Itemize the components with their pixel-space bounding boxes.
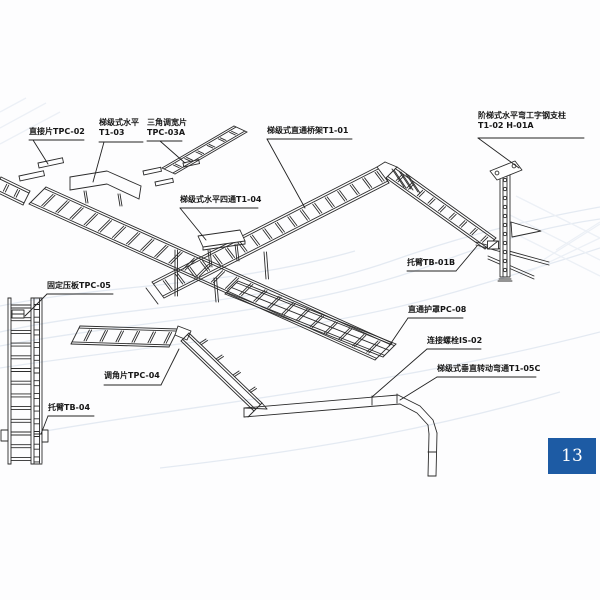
page-number-badge: 13 (548, 438, 596, 474)
incline-tray-tpc04 (181, 333, 267, 417)
bend-fitting-t103 (70, 171, 141, 206)
label-tb01b: 托臂TB-01B (407, 258, 455, 268)
vertical-wall-ladder (1, 298, 48, 464)
label-tpc05: 固定压板TPC-05 (47, 281, 111, 291)
catalog-page: 直接片TPC-02 梯级式水平T1-03 三角调宽片TPC-03A 梯级式直通桥… (0, 0, 600, 600)
label-tpc03a: 三角调宽片TPC-03A (147, 118, 187, 138)
label-tpc02: 直接片TPC-02 (29, 127, 85, 137)
label-t101: 梯级式直通桥架T1-01 (267, 126, 348, 136)
ladder-run-diagonal (29, 187, 392, 360)
label-tb04: 托臂TB-04 (48, 403, 90, 413)
width-adjust-pieces-tpc03a (143, 160, 199, 186)
label-tpc04: 调角片TPC-04 (104, 371, 160, 381)
connector-plates-tpc02 (19, 158, 63, 181)
cable-tray-technical-diagram (0, 0, 600, 600)
label-h01a: 阶梯式水平弯工字钢支柱T1-02 H-01A (478, 111, 566, 131)
floor-tray-with-vertical-bend-t105c (244, 394, 437, 476)
label-t105c: 梯级式垂直转动弯通T1-05C (437, 364, 540, 374)
label-t103: 梯级式水平T1-03 (99, 118, 139, 138)
mid-horizontal-ladder (71, 326, 191, 347)
support-column-h01a (476, 161, 549, 281)
label-is02: 连接螺栓IS-02 (427, 336, 482, 346)
left-edge-tray-stub (0, 177, 30, 205)
label-t104: 梯级式水平四通T1-04 (180, 195, 261, 205)
label-pc08: 直通护罩PC-08 (408, 305, 466, 315)
cover-tray-pc08 (225, 281, 396, 357)
ladder-run-elevated (146, 162, 496, 304)
